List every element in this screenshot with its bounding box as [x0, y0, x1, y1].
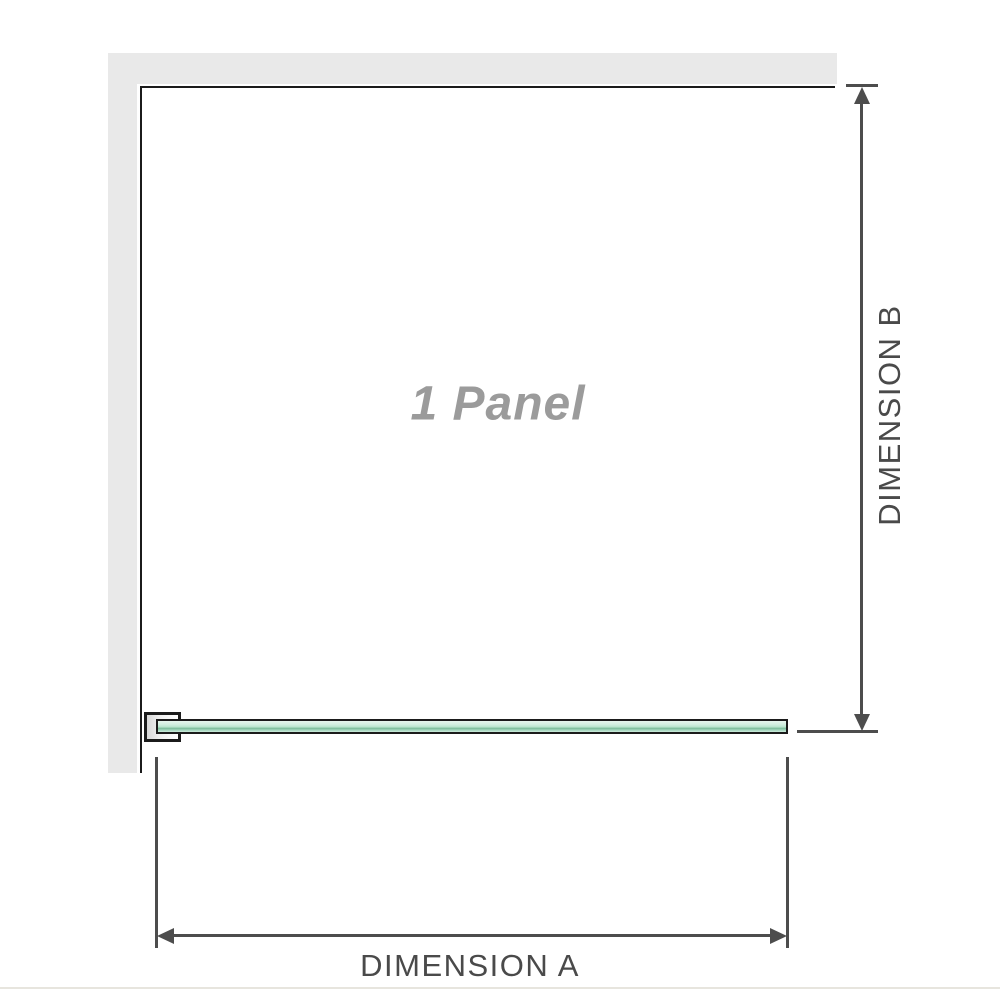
- bottom-divider: [0, 987, 1000, 989]
- panel-count-label: 1 Panel: [410, 377, 585, 432]
- enclosure-left-edge: [140, 86, 142, 773]
- dimension-b-line: [860, 96, 863, 724]
- wall-top-segment: [108, 53, 837, 84]
- dimension-a-line: [162, 934, 782, 937]
- arrowhead-down-icon: [854, 714, 870, 731]
- enclosure-top-edge: [140, 86, 835, 88]
- dimension-diagram-canvas: 1 Panel DIMENSION B DIMENSION A: [0, 0, 1000, 1000]
- arrowhead-right-icon: [770, 928, 787, 944]
- glass-panel: [156, 719, 788, 734]
- wall-left-segment: [108, 53, 137, 773]
- dimension-a-extension-right: [786, 757, 789, 948]
- dimension-a-extension-left: [155, 757, 158, 948]
- dimension-a-label: DIMENSION A: [360, 948, 580, 984]
- arrowhead-up-icon: [854, 87, 870, 104]
- dimension-b-label: DIMENSION B: [872, 304, 908, 525]
- arrowhead-left-icon: [157, 928, 174, 944]
